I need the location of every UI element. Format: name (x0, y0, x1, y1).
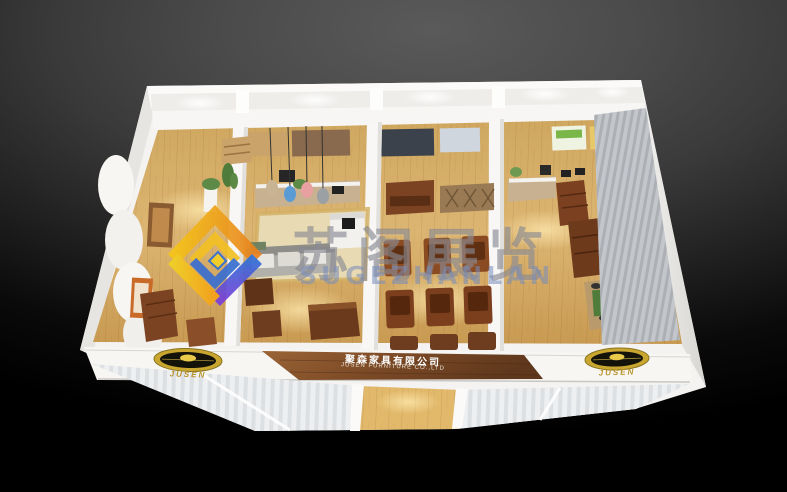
console-plant (510, 167, 522, 177)
gray-sofa (246, 242, 337, 278)
render-stage: 苏阁展览 SUGEZHANLAN 聚森家具有限公司 JUSEN FURNITUR… (0, 0, 787, 492)
sofa-cushion (304, 250, 326, 265)
poster-modern-living (380, 129, 434, 157)
fascia-wood-sign (262, 351, 543, 380)
poster-showroom (440, 128, 480, 153)
coffee-table (330, 212, 366, 249)
chair (461, 236, 489, 273)
stool (252, 310, 282, 338)
planter-foliage (202, 178, 220, 190)
stool (244, 278, 274, 306)
black-box (540, 165, 551, 175)
pendant-shade (266, 180, 278, 196)
side-table (186, 317, 217, 347)
poster-green-text (556, 130, 582, 139)
poster-dark-bedroom (292, 129, 350, 156)
chair (423, 238, 451, 275)
wavy-wall-segment (98, 155, 134, 215)
chair (463, 286, 492, 325)
chair (390, 336, 418, 350)
tv-cabinet-door (390, 196, 430, 207)
dresser (556, 180, 589, 226)
cactus-plant-arm (230, 173, 238, 189)
chair (383, 240, 411, 277)
switch-panel (575, 168, 585, 175)
pendant-shade (284, 186, 296, 202)
speaker (279, 170, 295, 182)
pendant-shade (317, 188, 329, 204)
stand-item (591, 283, 601, 289)
wine-rack-console (440, 183, 494, 213)
wall-shelf (222, 136, 252, 165)
booth-render (0, 0, 787, 492)
chair (385, 290, 414, 329)
chair (425, 288, 454, 327)
switch-panel (561, 170, 571, 177)
wavy-wall-segment (105, 210, 143, 270)
chair (468, 332, 496, 350)
pendant-shade (301, 182, 313, 198)
coffee-machine (342, 218, 355, 229)
switch-panel (332, 186, 344, 194)
sofa-cushion (278, 252, 300, 267)
framed-art-inner (151, 208, 170, 243)
chair (430, 334, 458, 350)
